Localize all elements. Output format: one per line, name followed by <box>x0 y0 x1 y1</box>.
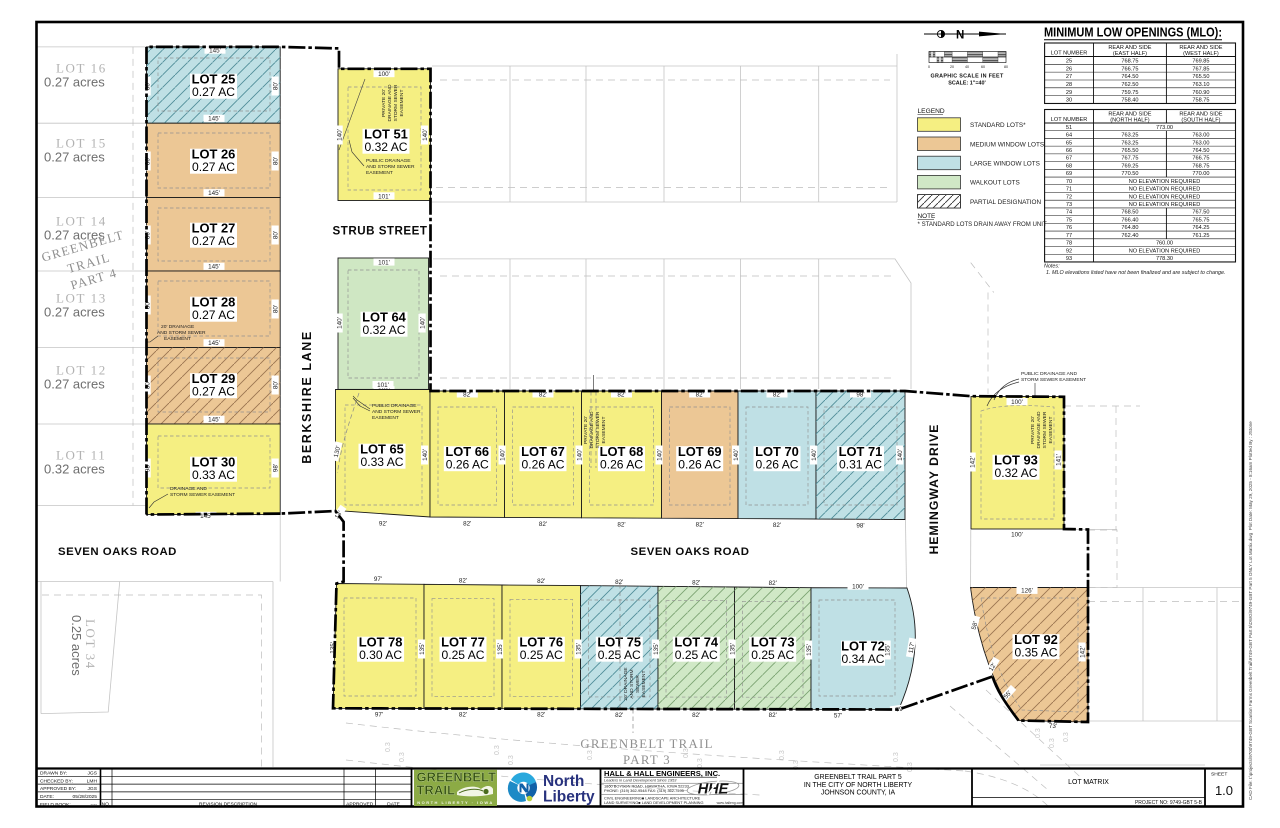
svg-text:www.halleng.com: www.halleng.com <box>717 801 744 805</box>
svg-text:82': 82' <box>615 712 623 719</box>
svg-text:135': 135' <box>419 643 426 655</box>
svg-text:768.75: 768.75 <box>1121 58 1138 64</box>
svg-text:762.40: 762.40 <box>1121 233 1138 239</box>
svg-text:101': 101' <box>378 193 390 200</box>
svg-text:0.3: 0.3 <box>399 752 406 762</box>
svg-text:769.85: 769.85 <box>1192 58 1209 64</box>
svg-text:LOT 14: LOT 14 <box>56 214 107 229</box>
svg-text:765.50: 765.50 <box>1121 148 1138 154</box>
svg-text:768.50: 768.50 <box>1121 210 1138 216</box>
svg-text:760.90: 760.90 <box>1192 90 1209 96</box>
svg-text:AND STORM: AND STORM <box>629 669 635 698</box>
svg-text:82': 82' <box>773 522 781 529</box>
svg-text:GRAPHIC SCALE IN FEET: GRAPHIC SCALE IN FEET <box>930 74 1003 80</box>
svg-text:767.85: 767.85 <box>1192 66 1209 72</box>
svg-text:0.32 acres: 0.32 acres <box>44 462 105 477</box>
svg-text:0.35 AC: 0.35 AC <box>1014 646 1057 660</box>
svg-text:MEDIUM WINDOW LOTS: MEDIUM WINDOW LOTS <box>970 141 1044 148</box>
svg-text:758.75: 758.75 <box>1192 98 1209 104</box>
svg-text:0.25 AC: 0.25 AC <box>751 648 794 662</box>
svg-text:* STANDARD LOTS DRAIN AWAY FRO: * STANDARD LOTS DRAIN AWAY FROM UNIT <box>918 221 1047 228</box>
svg-text:145': 145' <box>208 417 220 424</box>
svg-text:142': 142' <box>970 456 977 468</box>
svg-text:140': 140' <box>337 317 344 329</box>
svg-text:135': 135' <box>885 644 892 656</box>
svg-text:51: 51 <box>1066 125 1072 131</box>
svg-text:80: 80 <box>1004 65 1008 69</box>
svg-text:26: 26 <box>1066 66 1072 72</box>
svg-text:763.25: 763.25 <box>1121 140 1138 146</box>
svg-text:140': 140' <box>733 449 740 461</box>
svg-text:98': 98' <box>273 464 280 472</box>
svg-text:100': 100' <box>378 71 390 78</box>
svg-text:0.26 AC: 0.26 AC <box>755 458 798 472</box>
svg-text:101': 101' <box>377 382 389 389</box>
svg-text:NO ELEVATION REQUIRED: NO ELEVATION REQUIRED <box>1129 202 1201 208</box>
svg-text:APPROVED BY:: APPROVED BY: <box>40 786 76 792</box>
svg-text:LOT NUMBER: LOT NUMBER <box>1051 117 1088 123</box>
svg-text:141': 141' <box>1056 454 1063 466</box>
svg-text:140': 140' <box>422 449 429 461</box>
svg-text:764.80: 764.80 <box>1121 225 1138 231</box>
svg-text:JOHNSON COUNTY, IA: JOHNSON COUNTY, IA <box>821 790 896 797</box>
svg-text:EASEMENT: EASEMENT <box>1048 417 1054 444</box>
svg-text:0.31 AC: 0.31 AC <box>839 458 882 472</box>
svg-text:DRAINAGE AND: DRAINAGE AND <box>589 411 595 448</box>
svg-text:66: 66 <box>1066 148 1072 154</box>
svg-text:(NORTH HALF): (NORTH HALF) <box>1110 118 1150 124</box>
svg-text:EASEMENT: EASEMENT <box>601 417 607 444</box>
svg-text:140': 140' <box>420 317 427 329</box>
svg-text:82': 82' <box>769 580 777 587</box>
svg-text:0.3: 0.3 <box>907 762 914 772</box>
svg-text:764.50: 764.50 <box>1192 148 1209 154</box>
svg-text:766.75: 766.75 <box>1121 66 1138 72</box>
svg-text:67: 67 <box>1066 156 1072 162</box>
svg-text:MINIMUM LOW OPENINGS (MLO):: MINIMUM LOW OPENINGS (MLO): <box>1044 25 1222 40</box>
svg-text:758.40: 758.40 <box>1121 98 1138 104</box>
svg-text:PROJECT NO: 9749-GBT 5-B: PROJECT NO: 9749-GBT 5-B <box>1135 800 1203 806</box>
svg-text:EASEMENT: EASEMENT <box>399 90 405 117</box>
svg-text:HHE: HHE <box>698 782 730 798</box>
svg-text:Leaders in Land Development Si: Leaders in Land Development Since 1953 <box>604 778 677 783</box>
svg-text:20' DRAINAGE: 20' DRAINAGE <box>623 667 629 701</box>
svg-text:0.3: 0.3 <box>1063 732 1070 742</box>
svg-text:0.3: 0.3 <box>893 752 900 762</box>
svg-text:EASEMENT: EASEMENT <box>641 671 647 698</box>
svg-text:92: 92 <box>1066 248 1072 254</box>
svg-text:PHONE: (319) 362-9548 FAX: (: PHONE: (319) 362-9548 FAX: (319) 362-759… <box>604 788 684 793</box>
svg-text:82': 82' <box>537 578 545 585</box>
svg-text:28: 28 <box>1066 82 1072 88</box>
svg-text:145': 145' <box>208 116 220 123</box>
svg-text:20' DRAINAGE: 20' DRAINAGE <box>161 324 195 330</box>
svg-text:0.25 AC: 0.25 AC <box>675 648 718 662</box>
svg-text:73': 73' <box>1049 723 1057 730</box>
svg-text:0.25 AC: 0.25 AC <box>598 648 641 662</box>
svg-text:SEVEN OAKS ROAD: SEVEN OAKS ROAD <box>631 546 750 558</box>
svg-text:763.25: 763.25 <box>1121 133 1138 139</box>
svg-text:TRAIL: TRAIL <box>417 783 456 798</box>
svg-text:140': 140' <box>577 449 584 461</box>
svg-text:PUBLIC DRAINAGE: PUBLIC DRAINAGE <box>372 403 417 409</box>
svg-text:LMH: LMH <box>87 778 98 784</box>
svg-text:0.27 acres: 0.27 acres <box>44 150 105 165</box>
svg-text:0.3: 0.3 <box>697 758 704 768</box>
svg-text:73: 73 <box>1066 202 1072 208</box>
svg-text:0.26 AC: 0.26 AC <box>521 458 564 472</box>
svg-text:70: 70 <box>1066 179 1072 185</box>
svg-text:0.27 AC: 0.27 AC <box>192 234 235 248</box>
svg-text:PRIVATE 20': PRIVATE 20' <box>583 416 589 444</box>
svg-text:78: 78 <box>1066 241 1072 247</box>
svg-text:STRUB STREET: STRUB STREET <box>333 225 428 238</box>
svg-text:LEGEND: LEGEND <box>918 108 945 115</box>
svg-text:0.33 AC: 0.33 AC <box>360 455 403 469</box>
svg-text:IN THE CITY OF NORTH LIBERTY: IN THE CITY OF NORTH LIBERTY <box>804 782 913 789</box>
svg-text:NO ELEVATION REQUIRED: NO ELEVATION REQUIRED <box>1129 179 1201 185</box>
svg-text:72: 72 <box>1066 194 1072 200</box>
svg-text:68: 68 <box>1066 163 1072 169</box>
svg-text:1. MLO elevations listed have: 1. MLO elevations listed have not been f… <box>1046 270 1226 276</box>
svg-text:LAND SURVEYING■ LAND DEVELOPME: LAND SURVEYING■ LAND DEVELOPMENT PLANNIN… <box>604 800 704 805</box>
svg-text:0.26 AC: 0.26 AC <box>600 458 643 472</box>
svg-text:Liberty: Liberty <box>543 789 595 806</box>
svg-text:65: 65 <box>1066 140 1072 146</box>
svg-text:LOT 15: LOT 15 <box>56 136 107 151</box>
svg-text:EASEMENT: EASEMENT <box>366 170 393 176</box>
svg-text:77: 77 <box>1066 233 1072 239</box>
svg-text:82': 82' <box>459 712 467 719</box>
svg-text:N: N <box>956 30 964 42</box>
svg-text:0.32 AC: 0.32 AC <box>362 323 405 337</box>
svg-text:0.3: 0.3 <box>494 745 501 755</box>
svg-text:STORM SEWER: STORM SEWER <box>1042 411 1048 448</box>
svg-text:LOT 11: LOT 11 <box>56 448 106 463</box>
svg-text:140': 140' <box>897 449 904 461</box>
svg-text:82': 82' <box>769 712 777 719</box>
svg-text:765.75: 765.75 <box>1192 217 1209 223</box>
svg-text:CAD File: I:\projects\9700\974: CAD File: I:\projects\9700\9749-GBT Scan… <box>1248 421 1253 800</box>
svg-text:140': 140' <box>657 449 664 461</box>
svg-text:97': 97' <box>375 711 383 718</box>
svg-text:80': 80' <box>273 381 280 389</box>
svg-text:SEWER: SEWER <box>635 675 641 693</box>
svg-text:763.00: 763.00 <box>1192 133 1209 139</box>
svg-text:82': 82' <box>537 712 545 719</box>
svg-text:DRAINAGE AND: DRAINAGE AND <box>170 486 207 492</box>
svg-text:NO.: NO. <box>102 802 111 808</box>
svg-text:135': 135' <box>730 643 737 655</box>
svg-text:STORM SEWER EASEMENT: STORM SEWER EASEMENT <box>1021 377 1086 383</box>
svg-text:0.27 AC: 0.27 AC <box>192 308 235 322</box>
svg-text:NORTH LIBERTY · IOWA: NORTH LIBERTY · IOWA <box>417 800 494 805</box>
svg-text:0.26 AC: 0.26 AC <box>678 458 721 472</box>
svg-text:BERKSHIRE LANE: BERKSHIRE LANE <box>300 330 314 464</box>
svg-text:764.50: 764.50 <box>1121 74 1138 80</box>
svg-text:773.00: 773.00 <box>1156 125 1173 131</box>
svg-text:(SOUTH HALF): (SOUTH HALF) <box>1181 118 1220 124</box>
svg-text:STORM SEWER: STORM SEWER <box>595 411 601 448</box>
svg-text:LOT NUMBER: LOT NUMBER <box>1051 50 1088 56</box>
svg-text:LOT 12: LOT 12 <box>56 363 107 378</box>
svg-text:80': 80' <box>273 305 280 313</box>
svg-text:769.25: 769.25 <box>1121 163 1138 169</box>
svg-text:JGS: JGS <box>87 771 97 777</box>
svg-text:82': 82' <box>696 522 704 529</box>
svg-text:75: 75 <box>1066 217 1072 223</box>
svg-text:82': 82' <box>692 579 700 586</box>
svg-text:NO ELEVATION REQUIRED: NO ELEVATION REQUIRED <box>1129 187 1201 193</box>
svg-text:DRAINAGE AND: DRAINAGE AND <box>387 84 393 121</box>
svg-text:763.10: 763.10 <box>1192 82 1209 88</box>
svg-text:98': 98' <box>856 523 864 530</box>
svg-text:135': 135' <box>576 643 583 655</box>
svg-text:100': 100' <box>1011 532 1023 539</box>
svg-text:SEVEN OAKS ROAD: SEVEN OAKS ROAD <box>58 546 177 558</box>
svg-text:760.00: 760.00 <box>1156 241 1173 247</box>
svg-text:NO ELEVATION REQUIRED: NO ELEVATION REQUIRED <box>1129 248 1201 254</box>
svg-text:STORM SEWER EASEMENT: STORM SEWER EASEMENT <box>170 492 235 498</box>
svg-text:82': 82' <box>692 712 700 719</box>
svg-text:0.27 acres: 0.27 acres <box>44 75 105 90</box>
svg-text:761.25: 761.25 <box>1192 233 1209 239</box>
svg-text:100': 100' <box>852 584 864 591</box>
svg-text:82': 82' <box>459 577 467 584</box>
svg-text:GREENBELT TRAIL PART 5: GREENBELT TRAIL PART 5 <box>814 774 902 781</box>
svg-text:0.26 AC: 0.26 AC <box>446 458 489 472</box>
svg-text:135': 135' <box>806 644 813 656</box>
svg-text:(EAST HALF): (EAST HALF) <box>1113 51 1147 57</box>
svg-text:0.27 acres: 0.27 acres <box>44 377 105 392</box>
svg-text:142': 142' <box>1080 646 1087 658</box>
svg-text:0.25 acres: 0.25 acres <box>69 615 84 676</box>
svg-text:60: 60 <box>981 65 985 69</box>
svg-text:PARTIAL DESIGNATION: PARTIAL DESIGNATION <box>970 199 1042 206</box>
svg-text:97': 97' <box>374 576 382 583</box>
svg-text:LOT MATRIX: LOT MATRIX <box>1068 779 1109 786</box>
svg-text:0.3: 0.3 <box>508 755 515 765</box>
svg-text:05/28/2025: 05/28/2025 <box>73 794 98 800</box>
svg-text:82': 82' <box>539 521 547 528</box>
svg-text:DATE:: DATE: <box>40 794 54 800</box>
svg-text:HEMINGWAY DRIVE: HEMINGWAY DRIVE <box>927 424 941 555</box>
svg-text:0.3: 0.3 <box>683 748 690 758</box>
svg-text:JGS: JGS <box>87 786 97 792</box>
svg-text:20: 20 <box>950 65 954 69</box>
svg-text:135': 135' <box>653 643 660 655</box>
svg-text:71: 71 <box>1066 187 1072 193</box>
svg-text:762.50: 762.50 <box>1121 82 1138 88</box>
svg-text:145': 145' <box>208 190 220 197</box>
svg-text:57': 57' <box>834 712 842 719</box>
svg-text:64: 64 <box>1066 133 1072 139</box>
svg-text:767.50: 767.50 <box>1192 210 1209 216</box>
svg-text:NO ELEVATION REQUIRED: NO ELEVATION REQUIRED <box>1129 194 1201 200</box>
svg-text:0.3: 0.3 <box>1035 728 1042 738</box>
svg-text:0.3: 0.3 <box>385 742 392 752</box>
svg-text:759.75: 759.75 <box>1121 90 1138 96</box>
svg-text:WALKOUT LOTS: WALKOUT LOTS <box>970 180 1020 187</box>
svg-text:126': 126' <box>1021 588 1033 595</box>
svg-text:EASEMENT: EASEMENT <box>372 415 399 421</box>
svg-text:69: 69 <box>1066 171 1072 177</box>
svg-text:LOT 13: LOT 13 <box>56 291 107 306</box>
svg-text:40: 40 <box>965 65 969 69</box>
svg-text:STORM SEWER: STORM SEWER <box>393 84 399 121</box>
svg-text:92': 92' <box>379 521 387 528</box>
svg-text:766.40: 766.40 <box>1121 217 1138 223</box>
svg-text:0.30 AC: 0.30 AC <box>359 648 402 662</box>
svg-text:25: 25 <box>1066 58 1072 64</box>
svg-text:GREENBELT TRAIL: GREENBELT TRAIL <box>580 737 713 751</box>
svg-text:PUBLIC DRAINAGE: PUBLIC DRAINAGE <box>366 158 411 164</box>
svg-text:0.27 AC: 0.27 AC <box>192 160 235 174</box>
svg-text:765.50: 765.50 <box>1192 74 1209 80</box>
svg-text:0.32 AC: 0.32 AC <box>994 466 1037 480</box>
svg-text:EASEMENT: EASEMENT <box>164 336 191 342</box>
svg-text:27: 27 <box>1066 74 1072 80</box>
svg-text:0.3: 0.3 <box>779 750 786 760</box>
svg-text:82': 82' <box>615 579 623 586</box>
svg-text:770.50: 770.50 <box>1121 171 1138 177</box>
svg-text:0: 0 <box>928 65 930 69</box>
svg-text:LOT 16: LOT 16 <box>56 61 107 76</box>
svg-text:FIELD BOOK:: FIELD BOOK: <box>40 802 71 808</box>
svg-text:0.27 AC: 0.27 AC <box>192 85 235 99</box>
svg-text:764.25: 764.25 <box>1192 225 1209 231</box>
svg-text:0.3: 0.3 <box>1049 738 1056 748</box>
svg-text:82': 82' <box>617 521 625 528</box>
svg-text:29: 29 <box>1066 90 1072 96</box>
svg-text:STANDARD LOTS*: STANDARD LOTS* <box>970 122 1026 129</box>
svg-text:DRAWN BY:: DRAWN BY: <box>40 771 67 777</box>
svg-text:82': 82' <box>463 520 471 527</box>
svg-text:767.75: 767.75 <box>1121 156 1138 162</box>
svg-text:Notes:: Notes: <box>1044 264 1060 270</box>
svg-text:80': 80' <box>273 157 280 165</box>
svg-text:140': 140' <box>422 129 429 141</box>
svg-text:766.75: 766.75 <box>1192 156 1209 162</box>
svg-text:80': 80' <box>273 82 280 90</box>
svg-text:768.75: 768.75 <box>1192 163 1209 169</box>
svg-text:APPROVED: APPROVED <box>346 802 374 808</box>
svg-text:LARGE WINDOW LOTS: LARGE WINDOW LOTS <box>970 161 1040 168</box>
svg-text:SHEET: SHEET <box>1211 772 1227 778</box>
svg-text:0.34 AC: 0.34 AC <box>841 652 884 666</box>
svg-text:AND STORM SEWER: AND STORM SEWER <box>372 409 421 415</box>
svg-text:(WEST HALF): (WEST HALF) <box>1183 51 1219 57</box>
svg-text:101': 101' <box>378 259 390 266</box>
svg-text:778.30: 778.30 <box>1156 256 1173 262</box>
svg-text:135': 135' <box>497 643 504 655</box>
svg-text:0.27 acres: 0.27 acres <box>44 305 105 320</box>
svg-text:0.25 AC: 0.25 AC <box>520 648 563 662</box>
svg-text:HALL & HALL ENGINEERS, INC.: HALL & HALL ENGINEERS, INC. <box>604 769 720 778</box>
svg-text:140': 140' <box>337 129 344 141</box>
svg-text:30: 30 <box>1066 98 1072 104</box>
svg-text:140': 140' <box>500 449 507 461</box>
svg-text:PART 3: PART 3 <box>623 753 671 767</box>
svg-text:DRAINAGE AND: DRAINAGE AND <box>1036 411 1042 448</box>
svg-text:76: 76 <box>1066 225 1072 231</box>
svg-text:PRIVATE 20': PRIVATE 20' <box>1030 416 1036 444</box>
svg-text:145': 145' <box>208 264 220 271</box>
svg-text:CHECKED BY:: CHECKED BY: <box>40 778 73 784</box>
svg-text:PRIVATE 20': PRIVATE 20' <box>381 89 387 117</box>
svg-text:0.27 AC: 0.27 AC <box>192 385 235 399</box>
svg-text:145': 145' <box>209 48 221 55</box>
svg-text:DATE: DATE <box>387 802 400 808</box>
svg-text:PUBLIC DRAINAGE AND: PUBLIC DRAINAGE AND <box>1021 371 1077 377</box>
svg-text:80': 80' <box>273 231 280 239</box>
svg-text:145': 145' <box>208 340 220 347</box>
svg-text:REVISION DESCRIPTION: REVISION DESCRIPTION <box>199 802 258 808</box>
svg-text:North: North <box>543 773 584 790</box>
svg-text:0.32 AC: 0.32 AC <box>364 140 407 154</box>
svg-text:74: 74 <box>1066 210 1072 216</box>
svg-text:0.33 AC: 0.33 AC <box>192 468 235 482</box>
svg-text:SCALE: 1"=40': SCALE: 1"=40' <box>948 81 986 87</box>
svg-text:0.3: 0.3 <box>587 750 594 760</box>
svg-text:100': 100' <box>1011 399 1023 406</box>
svg-text:LOT 34: LOT 34 <box>83 619 98 670</box>
svg-text:1.0: 1.0 <box>1215 783 1233 798</box>
svg-text:140': 140' <box>811 449 818 461</box>
svg-text:0.25 AC: 0.25 AC <box>441 648 484 662</box>
svg-text:----: ---- <box>90 803 97 808</box>
svg-text:93: 93 <box>1066 256 1072 262</box>
svg-text:AND STORM SEWER: AND STORM SEWER <box>157 330 206 336</box>
svg-text:770.00: 770.00 <box>1192 171 1209 177</box>
svg-text:NOTE: NOTE <box>918 213 936 220</box>
svg-text:AND STORM SEWER: AND STORM SEWER <box>366 164 415 170</box>
svg-text:763.00: 763.00 <box>1192 140 1209 146</box>
